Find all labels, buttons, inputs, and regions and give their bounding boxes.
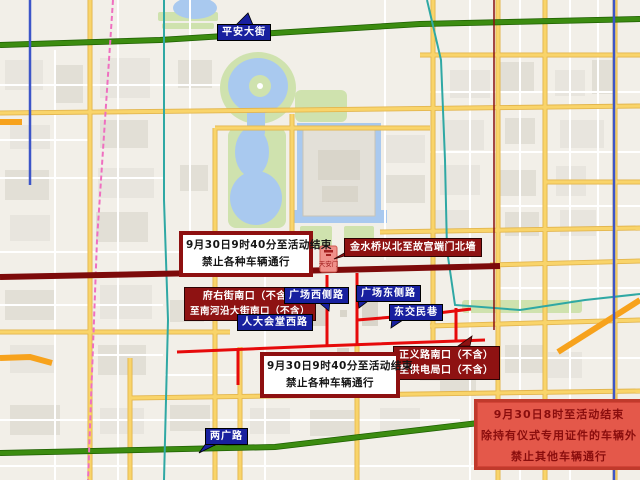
permit-notice-line2: 除持有仪式专用证件的车辆外 xyxy=(477,425,640,446)
road-label-dongjiaominxiang: 东交民巷 xyxy=(389,304,443,321)
segment-label-jinshuiqiao: 金水桥以北至故宫端门北墙 xyxy=(344,238,482,257)
road-label-liangguanglu: 两广路 xyxy=(205,428,248,445)
permit-notice-line3: 禁止其他车辆通行 xyxy=(477,446,640,467)
map-canvas[interactable]: 天安门 平安大街 9月30日9时40分至活动结束 禁止各种车辆通行 金水桥以北至… xyxy=(0,0,640,480)
closure-notice-south-line1: 9月30日9时40分至活动结束 xyxy=(267,358,393,375)
permit-notice-line1: 9月30日8时至活动结束 xyxy=(477,404,640,425)
closure-notice-north: 9月30日9时40分至活动结束 禁止各种车辆通行 xyxy=(179,231,313,277)
segment-label-zhengyilu-line1: 正义路南口（不含） xyxy=(399,348,494,363)
road-label-rendahuitang-xilu: 人大会堂西路 xyxy=(237,314,313,331)
road-label-guangchang-dongce-lu: 广场东侧路 xyxy=(356,285,421,302)
closure-notice-north-line2: 禁止各种车辆通行 xyxy=(186,254,306,271)
closure-notice-south: 9月30日9时40分至活动结束 禁止各种车辆通行 xyxy=(260,352,400,398)
tiananmen-label: 天安门 xyxy=(319,259,339,268)
closure-notice-north-line1: 9月30日9时40分至活动结束 xyxy=(186,237,306,254)
segment-label-zhengyilu-line2: 至供电局口（不含） xyxy=(399,363,494,378)
road-label-pingan-dajie: 平安大街 xyxy=(217,24,271,41)
closure-notice-south-line2: 禁止各种车辆通行 xyxy=(267,375,393,392)
permit-notice-box: 9月30日8时至活动结束 除持有仪式专用证件的车辆外 禁止其他车辆通行 xyxy=(474,399,640,470)
road-label-guangchang-xice-lu: 广场西侧路 xyxy=(284,287,349,304)
